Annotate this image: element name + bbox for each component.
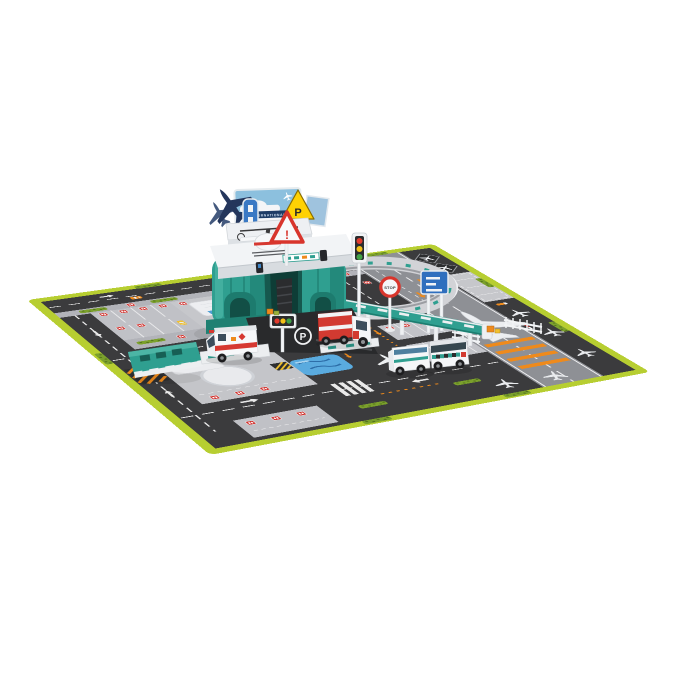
stop-sign: STOP bbox=[381, 278, 399, 332]
warning-symbol: ! bbox=[285, 228, 289, 242]
green-light bbox=[357, 254, 363, 260]
parking-triangle-symbol: P bbox=[294, 207, 301, 219]
fence bbox=[504, 317, 542, 334]
security-van bbox=[424, 338, 472, 375]
green-light bbox=[286, 318, 291, 323]
stop-sign-text: STOP bbox=[384, 285, 396, 290]
light-bar bbox=[209, 330, 214, 333]
playset-pieces: STOP INTERNATIONAL AIRPORT bbox=[0, 0, 700, 700]
yellow-light bbox=[357, 246, 363, 252]
red-light bbox=[357, 238, 363, 244]
service-truck bbox=[386, 344, 434, 379]
side-window bbox=[218, 334, 226, 341]
product-photo: STOP INTERNATIONAL AIRPORT bbox=[0, 0, 700, 700]
yellow-light bbox=[280, 318, 285, 323]
red-light bbox=[274, 318, 279, 323]
teal-ramp bbox=[128, 342, 203, 384]
ground-parking-symbol: P bbox=[300, 332, 307, 343]
